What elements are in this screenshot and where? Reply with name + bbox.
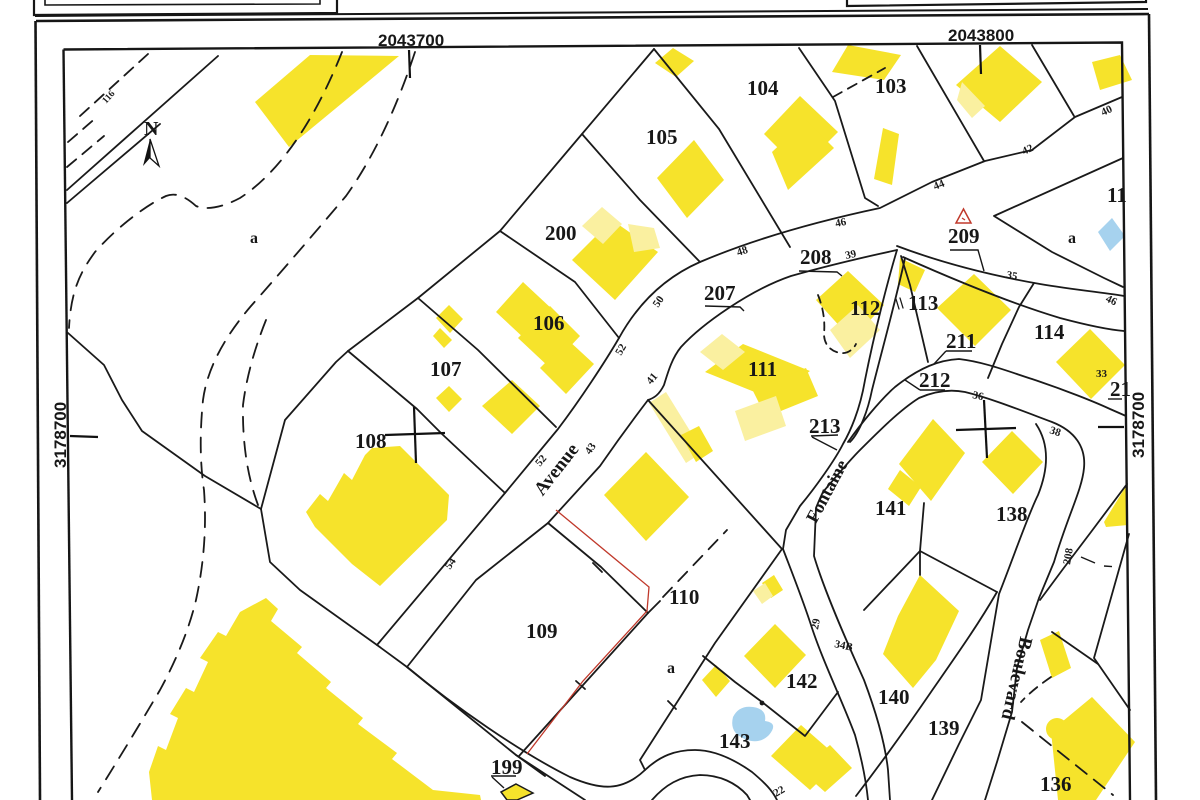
svg-text:N: N [144, 118, 159, 140]
svg-text:212: 212 [919, 368, 951, 392]
svg-text:33: 33 [1096, 368, 1108, 380]
svg-text:111: 111 [748, 357, 777, 381]
svg-text:2043800: 2043800 [948, 26, 1014, 45]
svg-text:2043700: 2043700 [378, 31, 444, 50]
svg-text:104: 104 [747, 76, 779, 100]
svg-text:138: 138 [996, 502, 1028, 526]
svg-text:114: 114 [1034, 320, 1065, 344]
svg-text:136: 136 [1040, 772, 1072, 796]
svg-text:105: 105 [646, 125, 678, 149]
svg-text:106: 106 [533, 311, 565, 335]
svg-text:141: 141 [875, 496, 907, 520]
svg-text:a: a [667, 660, 675, 677]
svg-text:112: 112 [850, 296, 880, 320]
svg-text:142: 142 [786, 669, 818, 693]
svg-text:207: 207 [704, 281, 736, 305]
svg-text:143: 143 [719, 729, 751, 753]
svg-text:113: 113 [908, 291, 938, 315]
svg-text:3178700: 3178700 [51, 402, 70, 468]
svg-text:139: 139 [928, 716, 960, 740]
svg-text:11: 11 [1107, 183, 1127, 207]
svg-text:209: 209 [948, 224, 980, 248]
svg-text:107: 107 [430, 357, 462, 381]
svg-text:a: a [250, 230, 258, 247]
svg-text:3178700: 3178700 [1129, 392, 1148, 458]
svg-text:110: 110 [669, 585, 699, 609]
svg-text:103: 103 [875, 74, 907, 98]
svg-text:21: 21 [1110, 377, 1131, 401]
svg-text:109: 109 [526, 619, 558, 643]
svg-text:200: 200 [545, 221, 577, 245]
svg-text:208: 208 [800, 245, 832, 269]
svg-text:108: 108 [355, 429, 387, 453]
svg-text:140: 140 [878, 685, 910, 709]
svg-text:211: 211 [946, 329, 976, 353]
svg-text:a: a [1068, 230, 1076, 247]
